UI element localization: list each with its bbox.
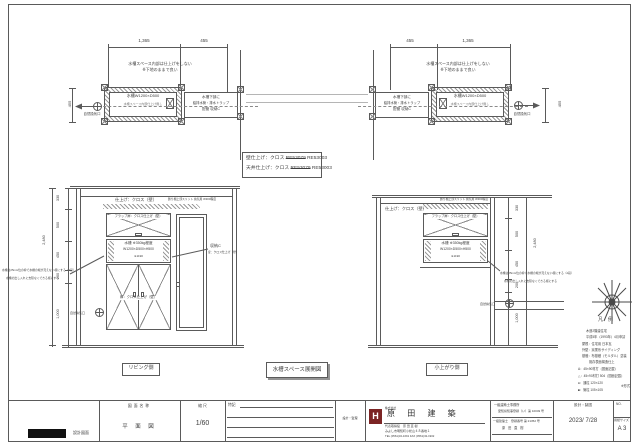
column-post	[505, 84, 512, 91]
legend-side-note: ※形式	[621, 385, 630, 389]
tank-width-label: ※1190	[424, 255, 487, 258]
titleblock-divider	[490, 400, 491, 442]
tank-label: 水槽 ※350kg程度	[107, 242, 170, 246]
slit-hatch	[423, 204, 488, 209]
column-post	[428, 84, 435, 91]
flap-handle	[135, 233, 142, 236]
dimension-line	[52, 188, 53, 347]
tank-plan-label: 水槽W1200×D500	[112, 94, 174, 98]
dim-tick	[523, 197, 530, 198]
handle-tick	[176, 282, 180, 283]
dim-label: 1,000	[514, 306, 520, 330]
storage-plan-note: 配管 収納C	[185, 108, 237, 112]
column-post	[505, 118, 512, 125]
floor-line	[62, 347, 244, 348]
caption-title-label: 水槽スペース展開図	[266, 367, 328, 373]
slit-note: 飾り棚上部スリット 換気用 W300程度	[168, 198, 216, 201]
office-line: 原 田 直 樹	[502, 427, 524, 431]
dim-tick	[65, 241, 72, 242]
storage-plan-note: 水槽下部に	[185, 96, 237, 100]
titleblock-divider	[335, 400, 336, 442]
finish-old-code: RE53079	[291, 166, 311, 171]
dim-tick	[49, 345, 56, 346]
vent-label: 自然換気口	[505, 113, 539, 117]
office-line: 一級建築士 登録番号 第 21352 号	[493, 420, 540, 423]
dim-tick	[65, 345, 72, 346]
dim-label: 500	[514, 222, 520, 246]
notes-rule	[240, 407, 333, 408]
extension-line	[108, 50, 109, 88]
wall-line	[494, 197, 495, 345]
dimension-line	[390, 47, 510, 48]
caption-living-label: リビング側	[122, 366, 160, 372]
telephone-line: TEL (0561)32-1691 FAX (0561)32-1902	[385, 435, 434, 438]
column-post	[178, 118, 185, 125]
dimension-line	[68, 188, 69, 347]
finish-new-code: RE53003	[307, 156, 327, 161]
wall-line	[240, 50, 241, 160]
legend-line: △：45×90材打 504（図面記載）	[578, 375, 624, 379]
logo-letter: H	[372, 411, 379, 421]
vent-label: 自然換気口	[70, 312, 85, 315]
dim-tick	[65, 209, 72, 210]
wall-line	[490, 197, 491, 345]
dim-tick	[65, 270, 72, 271]
flap-door-label: フラップ扉：クロス仕上げ（壁）	[424, 215, 487, 219]
dim-label: 455	[557, 92, 563, 116]
vent-icon	[95, 308, 104, 317]
dim-tick	[49, 188, 56, 189]
doc-type-label: 設計図面	[73, 431, 89, 435]
office-rule	[492, 434, 552, 435]
column-post	[237, 86, 244, 93]
legend-line: 平成5年（1993年）4月申請	[586, 336, 625, 340]
flap-door-label: フラップ扉：クロス仕上げ（壁）	[107, 215, 170, 219]
plan-note: ※下地のままで良い	[110, 68, 210, 72]
ceiling-line	[70, 188, 240, 189]
wall-finish-label: 仕上げ：クロス（壁）	[385, 207, 427, 212]
plan-note: ※下地のままで良い	[408, 68, 508, 72]
column-post	[237, 113, 244, 120]
vent-icon	[514, 101, 523, 110]
wall-line	[246, 94, 368, 95]
tank-width-label: ※1190	[107, 255, 170, 258]
legend-line: ■：管柱 105×105	[578, 389, 603, 393]
dim-label: 330	[514, 196, 520, 220]
wall-line	[232, 188, 233, 345]
redaction-bar	[28, 429, 66, 438]
dim-tick	[505, 197, 512, 198]
extension-line	[227, 50, 228, 92]
door-handle	[141, 292, 144, 297]
dim-tick	[505, 218, 512, 219]
dim-label: 455	[67, 92, 73, 116]
legend-line: 既存表面構造仕上	[589, 361, 615, 365]
door-handle	[133, 292, 136, 297]
dimension-line	[108, 47, 228, 48]
storage-door-panel	[179, 217, 204, 328]
finish-note-wall: 壁仕上げ：クロス RE53079 RE53003	[246, 156, 327, 161]
titleblock-divider	[225, 400, 226, 442]
legend-title: 凡 例	[598, 318, 613, 324]
titleblock-divider	[365, 400, 366, 442]
representative-line: 代表取締役 原 田 直 樹	[385, 425, 418, 428]
vent-label: 自然換気口	[75, 113, 109, 117]
dim-tick	[65, 283, 72, 284]
notes-header: 特記	[228, 403, 236, 407]
handle-tick	[176, 286, 180, 287]
paper-size-header: 用紙サイズ	[614, 419, 629, 422]
dim-tick	[69, 88, 76, 89]
side-note: 水槽は25mm位の枠で水槽の端が見えない様にする（2段）	[500, 272, 574, 275]
plan-fixture	[166, 98, 174, 109]
extension-line	[390, 50, 391, 90]
finish-new-code: RE53003	[312, 166, 332, 171]
plan-note: 水槽スペース内部は仕上げをしない	[110, 62, 210, 66]
notes-rule	[227, 427, 334, 428]
vent-icon	[505, 299, 514, 308]
legend-line: 基礎：布基礎（モルタル）塗装	[582, 355, 627, 359]
drawing-name-header: 図面名称	[99, 404, 180, 408]
dim-total-label: 2,480	[41, 226, 47, 254]
column-post	[101, 118, 108, 125]
wall-line	[236, 188, 237, 345]
finish-old-code: RE53079	[286, 156, 306, 161]
office-line: 愛知県知事登録（い）第 10049 号	[498, 410, 544, 413]
caption-koagari-label: 小上がり側	[426, 366, 468, 372]
center-line	[88, 106, 258, 107]
dim-label: 500	[55, 213, 61, 237]
sill-line	[420, 267, 491, 268]
company-name: 原 田 建 築	[387, 410, 461, 419]
legend-line: 屋根：住宅用 日本瓦	[582, 343, 612, 347]
dim-label: 200	[55, 264, 61, 288]
dimension-line	[508, 197, 509, 345]
finish-note-ceiling: 天井仕上げ：クロス RE53079 RE53003	[246, 166, 332, 171]
flap-handle	[452, 233, 459, 236]
dim-tick	[505, 250, 512, 251]
wall-line	[80, 188, 81, 345]
column-post	[369, 86, 376, 93]
titleblock-top-line	[8, 400, 631, 401]
wall-line	[376, 197, 377, 345]
tank-label: 水槽 ※350kg程度	[424, 242, 487, 246]
supervise-header: 設計・監理	[335, 417, 365, 420]
dim-tick	[542, 122, 549, 123]
dim-label: 1,365	[448, 39, 488, 44]
dim-label: 200	[514, 273, 520, 297]
door-label: 扉：クロス仕上げ（壁）	[107, 296, 170, 300]
paper-size-value: A 3	[613, 426, 631, 433]
notes-rule	[227, 437, 334, 438]
wall-finish-label: 仕上げ：クロス（壁）	[115, 198, 157, 203]
drawing-sheet: 1,365 455 水槽スペース内部は仕上げをしない ※下地のままで良い 水槽W…	[0, 0, 639, 447]
dimension-line	[526, 197, 527, 345]
plan-fixture	[439, 98, 447, 109]
storage-plan-note: 配管 収納C	[376, 108, 428, 112]
tank-size-label: W1200×D500×H500	[424, 248, 487, 252]
dim-label: 455	[396, 39, 424, 44]
drawing-name-value: 平 面 図	[99, 424, 180, 430]
column-post	[428, 118, 435, 125]
dim-label: 1,365	[124, 39, 164, 44]
scale-value: 1/60	[180, 420, 225, 428]
column-post	[101, 84, 108, 91]
scale-header: 縮 尺	[180, 404, 225, 408]
dim-label: 1,000	[55, 302, 61, 326]
dim-tick	[505, 292, 512, 293]
slit-note: 飾り棚上部スリット 換気用 W300程度	[440, 198, 488, 201]
finish-ceiling-label: 天井仕上げ：クロス	[246, 166, 289, 171]
wall-line	[380, 197, 381, 345]
side-note: 水槽の出し入れに支障なくできる様にする	[504, 280, 557, 283]
floor-line	[62, 345, 244, 346]
raised-floor-line	[494, 309, 564, 310]
slit-hatch	[103, 204, 200, 209]
plan-note: 水槽スペース内部は仕上げをしない	[408, 62, 508, 66]
dim-total-label: 2,480	[532, 229, 538, 257]
dim-label: 455	[190, 39, 218, 44]
tank-plan-label: 水槽W1200×D500	[439, 94, 501, 98]
storage-door-label: 扉：クロス仕上げ（壁）	[208, 251, 238, 254]
storage-plan-note: 水槽下部に	[376, 96, 428, 100]
wall-line	[76, 188, 77, 345]
dim-label: 330	[55, 186, 61, 210]
office-line: 一級建築士事務所	[494, 404, 520, 408]
finish-wall-label: 壁仕上げ：クロス	[246, 156, 284, 161]
legend-line: ●：通柱 120×120	[578, 382, 603, 386]
legend-line: 木造2階建住宅	[586, 330, 607, 334]
column-post	[178, 84, 185, 91]
ceiling-line	[70, 186, 240, 187]
draft-header: 設計・製図	[553, 404, 613, 408]
dim-tick	[505, 345, 512, 346]
office-rule	[492, 417, 552, 418]
draft-date-value: 2023/ 7/28	[553, 418, 613, 425]
legend-line: 外壁：窯業系サイディング	[582, 349, 620, 353]
wall-line	[246, 102, 368, 103]
dimension-line	[545, 88, 546, 122]
vent-label: 自然換気口	[480, 303, 495, 306]
dim-tick	[505, 279, 512, 280]
floor-line	[368, 347, 558, 348]
ceiling-line	[372, 195, 552, 196]
legend-line: A：45×90材打（図面記載）	[578, 368, 618, 372]
dim-tick	[542, 88, 549, 89]
dim-tick	[523, 345, 530, 346]
notes-rule	[227, 417, 334, 418]
dim-tick	[65, 188, 72, 189]
address-line: みよし市明知町小松山４８番地１	[385, 430, 430, 433]
tank-size-label: W1200×D500×H500	[107, 248, 170, 252]
company-logo: H	[369, 409, 382, 424]
storage-name-label: 収納C	[210, 244, 221, 248]
dim-tick	[69, 122, 76, 123]
number-header: NO.	[616, 403, 622, 407]
center-line	[358, 106, 528, 107]
column-post	[369, 113, 376, 120]
wall-line	[373, 50, 374, 160]
vent-icon	[93, 102, 102, 111]
